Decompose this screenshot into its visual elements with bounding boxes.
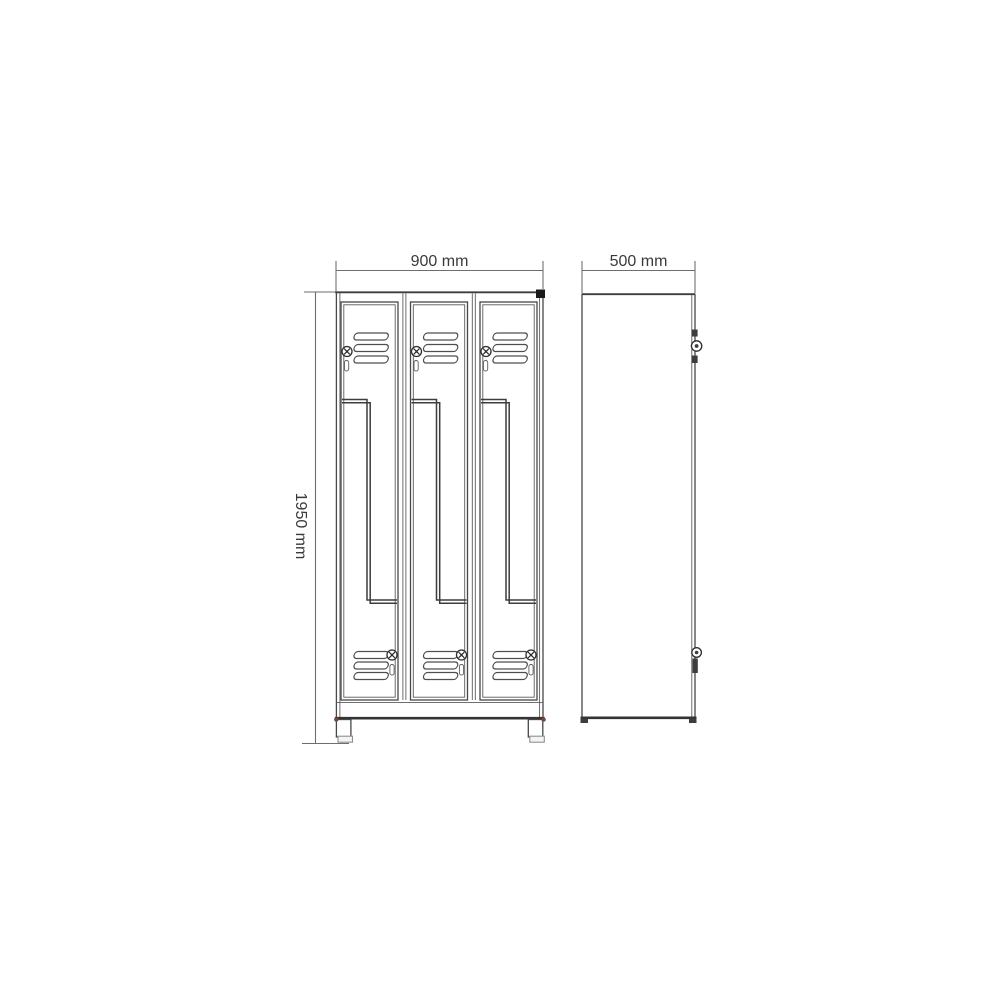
corner-marker: [536, 290, 545, 299]
locker-column-3: [480, 302, 537, 700]
locker-technical-drawing: 900 mm 500 mm 1950 mm: [0, 0, 1000, 1000]
side-upper-lock: [691, 330, 701, 364]
locker-column-1: [341, 302, 398, 700]
left-foot: [336, 720, 352, 743]
height-dimension-label: 1950 mm: [292, 493, 309, 560]
dimension-width: 900 mm: [336, 253, 543, 292]
locker-column-2: [411, 302, 468, 700]
side-lower-lock: [692, 648, 702, 673]
side-foot-stub-front: [689, 719, 697, 723]
foot-corner-marker-right: [541, 717, 545, 721]
side-view: [581, 294, 702, 723]
width-dimension-label: 900 mm: [411, 253, 469, 270]
dimension-depth: 500 mm: [582, 253, 695, 294]
right-foot: [528, 720, 544, 743]
front-view: [334, 290, 546, 743]
page: 900 mm 500 mm 1950 mm: [0, 0, 1000, 1000]
side-foot-stub-back: [581, 719, 589, 723]
foot-corner-marker-left: [334, 717, 338, 721]
depth-dimension-label: 500 mm: [610, 253, 668, 270]
